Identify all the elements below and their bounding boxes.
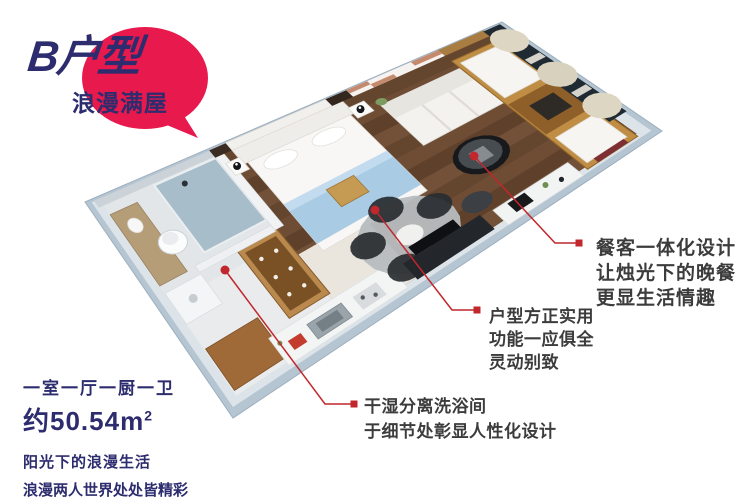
tagline-1: 阳光下的浪漫生活 — [23, 451, 188, 472]
leader-dot — [221, 266, 230, 275]
leader-dot — [371, 206, 380, 215]
callout-line-bath — [221, 266, 358, 408]
callout-line: 灵动别致 — [489, 351, 594, 374]
area-value: 约50.54m2 — [23, 401, 188, 438]
leader-line — [474, 156, 579, 243]
poster-canvas: B户型 浪漫满屋 餐客一体化设计 让烛光下的晚餐 更显生活情趣 户型方正实用 功… — [0, 0, 748, 498]
callout-line: 干湿分离洗浴间 — [364, 394, 557, 419]
callout-line: 于细节处彰显人性化设计 — [364, 419, 557, 444]
unit-subtitle: 浪漫满屋 — [72, 84, 168, 118]
leader-line — [375, 210, 477, 310]
unit-summary: 一室一厅一厨一卫 约50.54m2 阳光下的浪漫生活 浪漫两人世界处处皆精彩 — [23, 374, 188, 500]
leader-end-square — [474, 307, 481, 314]
area-number: 约50.54m — [23, 406, 144, 436]
area-sup: 2 — [144, 407, 153, 423]
callout-line-layout — [371, 206, 481, 314]
callout-line: 户型方正实用 — [489, 305, 594, 328]
callout-line: 餐客一体化设计 — [596, 236, 736, 261]
leader-line — [225, 270, 354, 404]
callout-line: 让烛光下的晚餐 — [596, 261, 736, 286]
callout-text-dining: 餐客一体化设计 让烛光下的晚餐 更显生活情趣 — [596, 236, 736, 311]
unit-title: B户型 — [26, 34, 142, 80]
callout-line: 功能一应俱全 — [489, 328, 594, 351]
callout-text-bath: 干湿分离洗浴间 于细节处彰显人性化设计 — [364, 394, 557, 444]
leader-end-square — [351, 401, 358, 408]
leader-dot — [470, 152, 479, 161]
callout-line: 更显生活情趣 — [596, 286, 736, 311]
callout-text-layout: 户型方正实用 功能一应俱全 灵动别致 — [489, 305, 594, 374]
tagline-2: 浪漫两人世界处处皆精彩 — [23, 479, 188, 500]
unit-badge: B户型 浪漫满屋 — [20, 20, 230, 155]
callout-line-dining — [470, 152, 583, 247]
layout-summary: 一室一厅一厨一卫 — [23, 374, 188, 399]
leader-end-square — [576, 240, 583, 247]
